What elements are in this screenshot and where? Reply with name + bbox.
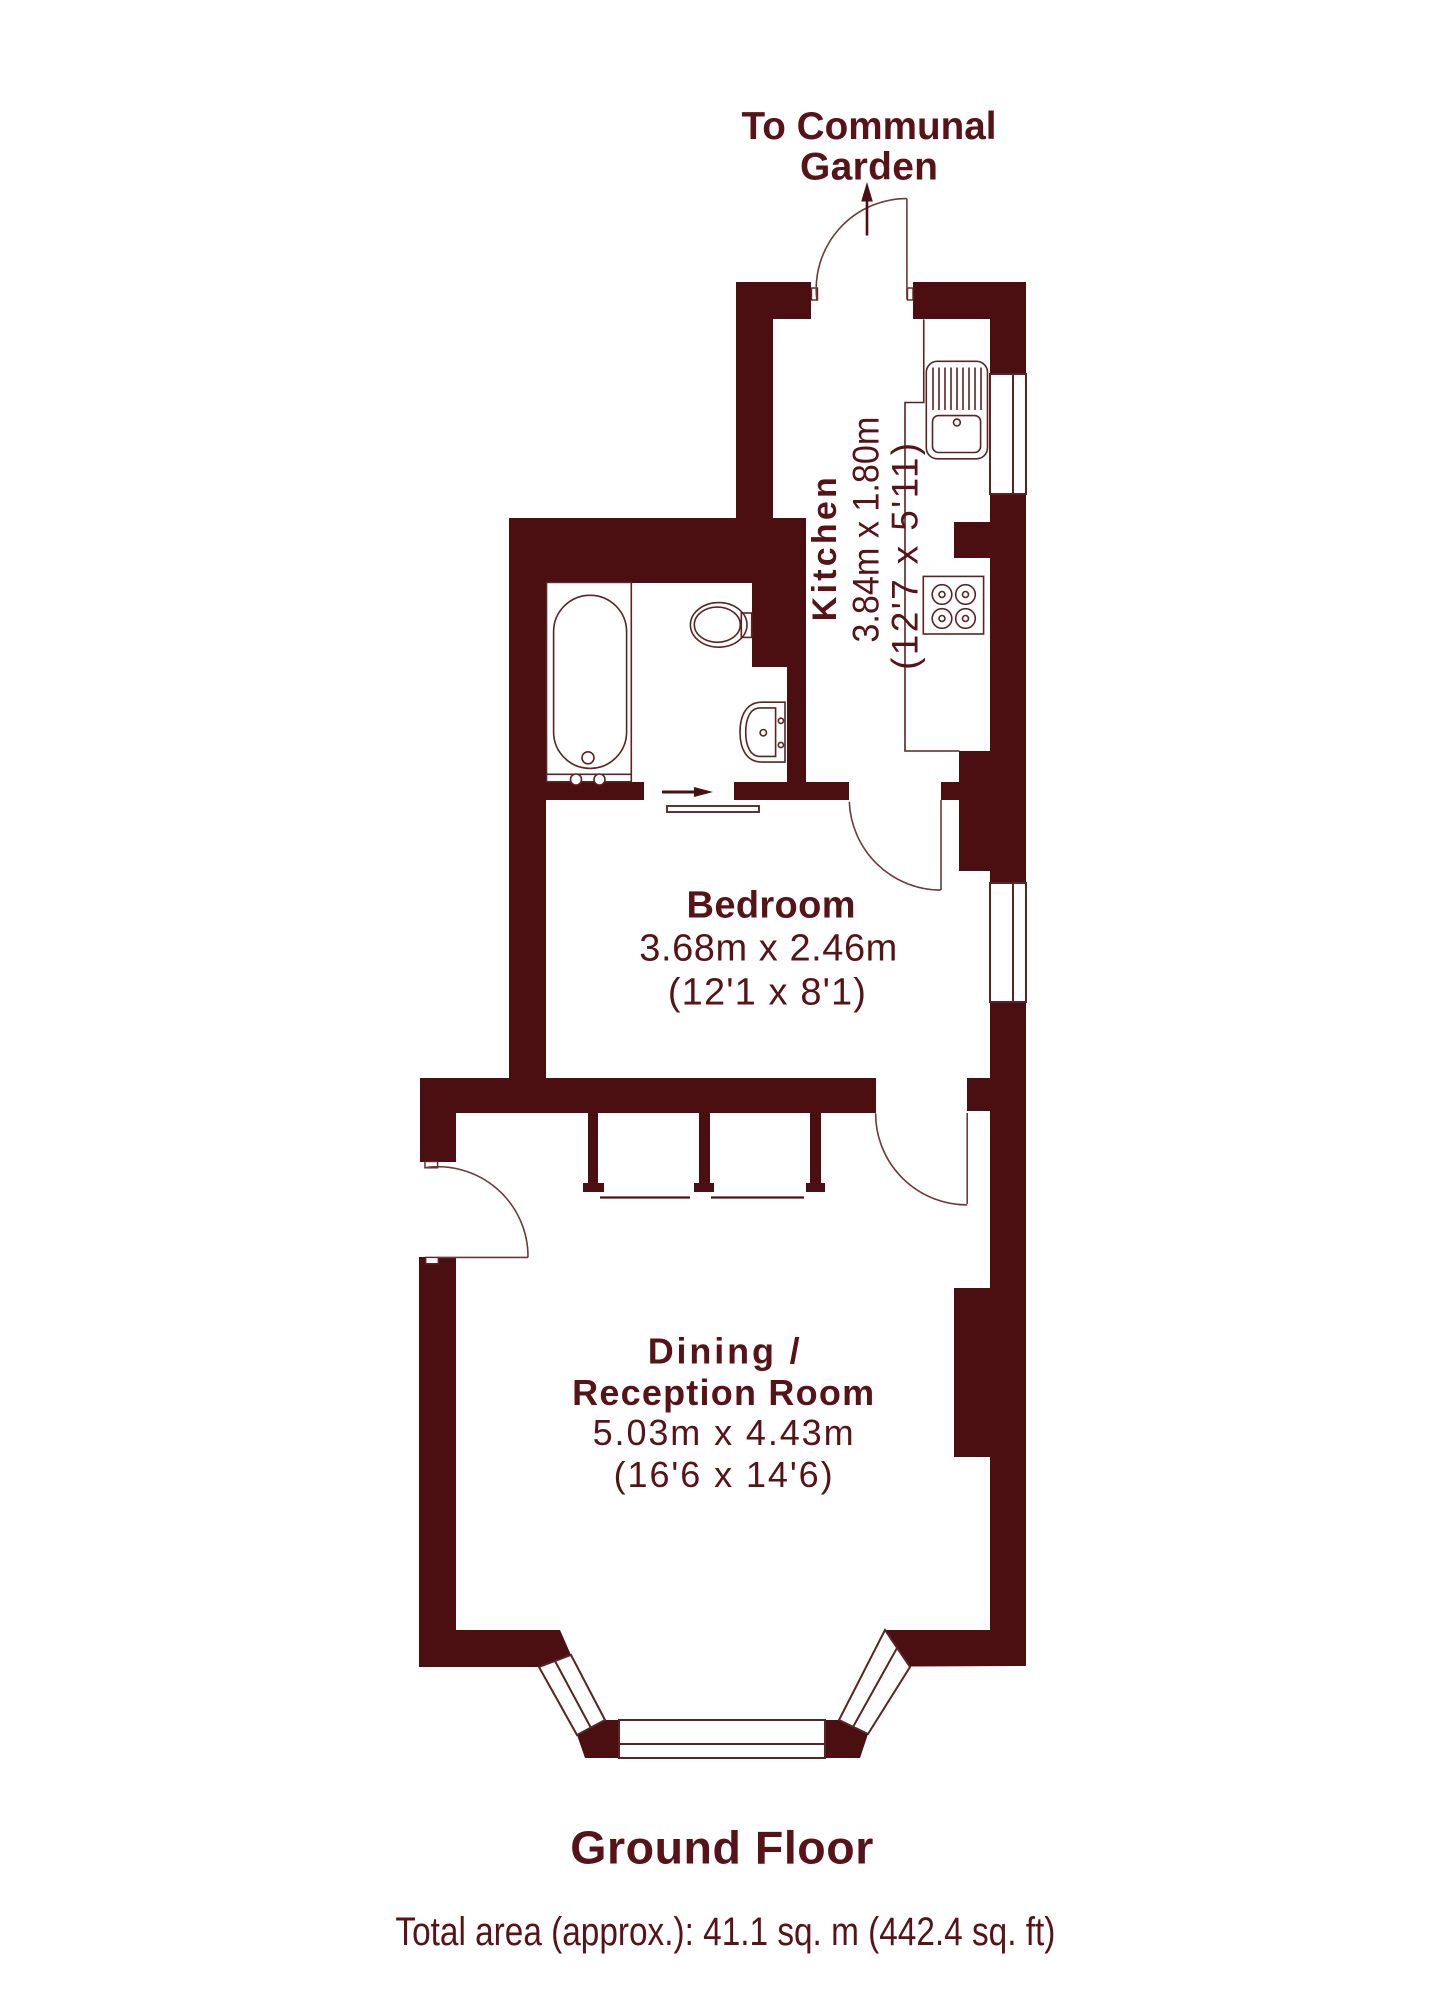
svg-text:Dining /: Dining /	[648, 1331, 800, 1372]
svg-text:Total area (approx.): 41.1 sq.: Total area (approx.): 41.1 sq. m (442.4 …	[395, 1910, 1055, 1954]
svg-text:To Communal: To Communal	[742, 105, 997, 148]
svg-text:(16'6 x 14'6): (16'6 x 14'6)	[614, 1454, 833, 1495]
svg-text:Bedroom: Bedroom	[687, 884, 856, 926]
svg-text:Reception Room: Reception Room	[572, 1372, 874, 1413]
svg-text:Ground Floor: Ground Floor	[570, 1821, 873, 1873]
svg-text:(12'1 x 8'1): (12'1 x 8'1)	[668, 972, 866, 1014]
svg-text:3.68m x 2.46m: 3.68m x 2.46m	[639, 927, 897, 969]
svg-text:Kitchen: Kitchen	[806, 477, 844, 621]
svg-text:Garden: Garden	[800, 145, 938, 188]
svg-text:(12'7 x 5'11): (12'7 x 5'11)	[885, 443, 926, 670]
svg-text:5.03m x 4.43m: 5.03m x 4.43m	[593, 1412, 854, 1453]
svg-text:3.84m x 1.80m: 3.84m x 1.80m	[846, 417, 887, 643]
